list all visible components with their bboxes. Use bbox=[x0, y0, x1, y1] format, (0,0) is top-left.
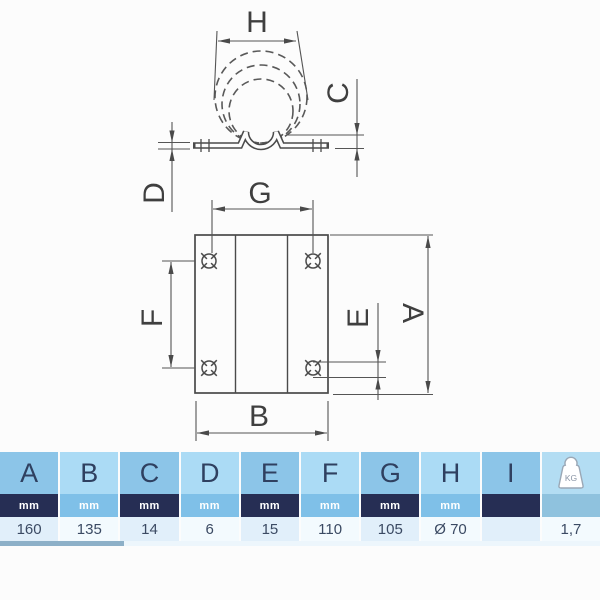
dim-label-F: F bbox=[136, 309, 169, 327]
column-value-b: 135 bbox=[60, 517, 118, 541]
column-value-i bbox=[482, 517, 540, 541]
column-unit-i bbox=[482, 494, 540, 517]
column-unit-a: mm bbox=[0, 494, 58, 517]
dim-label-G: G bbox=[248, 177, 271, 210]
column-header-a: A bbox=[0, 452, 58, 494]
table-column-a: A mm 160 bbox=[0, 452, 58, 541]
column-unit-g: mm bbox=[361, 494, 419, 517]
dim-label-H: H bbox=[246, 6, 268, 39]
column-value-c: 14 bbox=[120, 517, 178, 541]
column-unit-h: mm bbox=[421, 494, 479, 517]
column-unit-d: mm bbox=[181, 494, 239, 517]
table-scrollbar-track[interactable] bbox=[0, 541, 600, 546]
kg-weight-icon: KG bbox=[556, 455, 586, 491]
dim-label-A: A bbox=[396, 303, 429, 323]
column-value-g: 105 bbox=[361, 517, 419, 541]
dim-label-D: D bbox=[138, 182, 171, 204]
column-header-d: D bbox=[181, 452, 239, 494]
dim-label-C: C bbox=[322, 82, 355, 104]
column-header-i: I bbox=[482, 452, 540, 494]
column-header-h: H bbox=[421, 452, 479, 494]
table-column-i: I bbox=[482, 452, 540, 541]
table-column-f: F mm 110 bbox=[301, 452, 359, 541]
column-header-g: G bbox=[361, 452, 419, 494]
table-column-c: C mm 14 bbox=[120, 452, 178, 541]
dim-label-E: E bbox=[342, 308, 375, 328]
column-value-a: 160 bbox=[0, 517, 58, 541]
table-scrollbar-thumb[interactable] bbox=[0, 541, 124, 546]
table-column-b: B mm 135 bbox=[60, 452, 118, 541]
column-header-b: B bbox=[60, 452, 118, 494]
column-unit-b: mm bbox=[60, 494, 118, 517]
column-unit-e: mm bbox=[241, 494, 299, 517]
column-unit-c: mm bbox=[120, 494, 178, 517]
column-value-d: 6 bbox=[181, 517, 239, 541]
svg-text:KG: KG bbox=[565, 473, 577, 483]
dim-label-B: B bbox=[249, 400, 269, 433]
clamp-pipe-circles bbox=[215, 51, 307, 143]
column-value-kg: 1,7 bbox=[542, 517, 600, 541]
column-unit-f: mm bbox=[301, 494, 359, 517]
column-value-e: 15 bbox=[241, 517, 299, 541]
column-header-kg: KG bbox=[542, 452, 600, 494]
table-column-h: H mm Ø 70 bbox=[421, 452, 479, 541]
table-column-kg: KG 1,7 bbox=[542, 452, 600, 541]
dimension-table: A mm 160 B mm 135 C mm 14 D mm 6 E mm 15… bbox=[0, 452, 600, 541]
column-value-f: 110 bbox=[301, 517, 359, 541]
column-value-h: Ø 70 bbox=[421, 517, 479, 541]
table-column-e: E mm 15 bbox=[241, 452, 299, 541]
technical-drawing: H C D bbox=[0, 0, 600, 452]
table-column-g: G mm 105 bbox=[361, 452, 419, 541]
column-header-f: F bbox=[301, 452, 359, 494]
table-column-d: D mm 6 bbox=[181, 452, 239, 541]
column-header-e: E bbox=[241, 452, 299, 494]
column-header-c: C bbox=[120, 452, 178, 494]
plate-holes bbox=[201, 253, 321, 376]
column-unit-kg bbox=[542, 494, 600, 517]
